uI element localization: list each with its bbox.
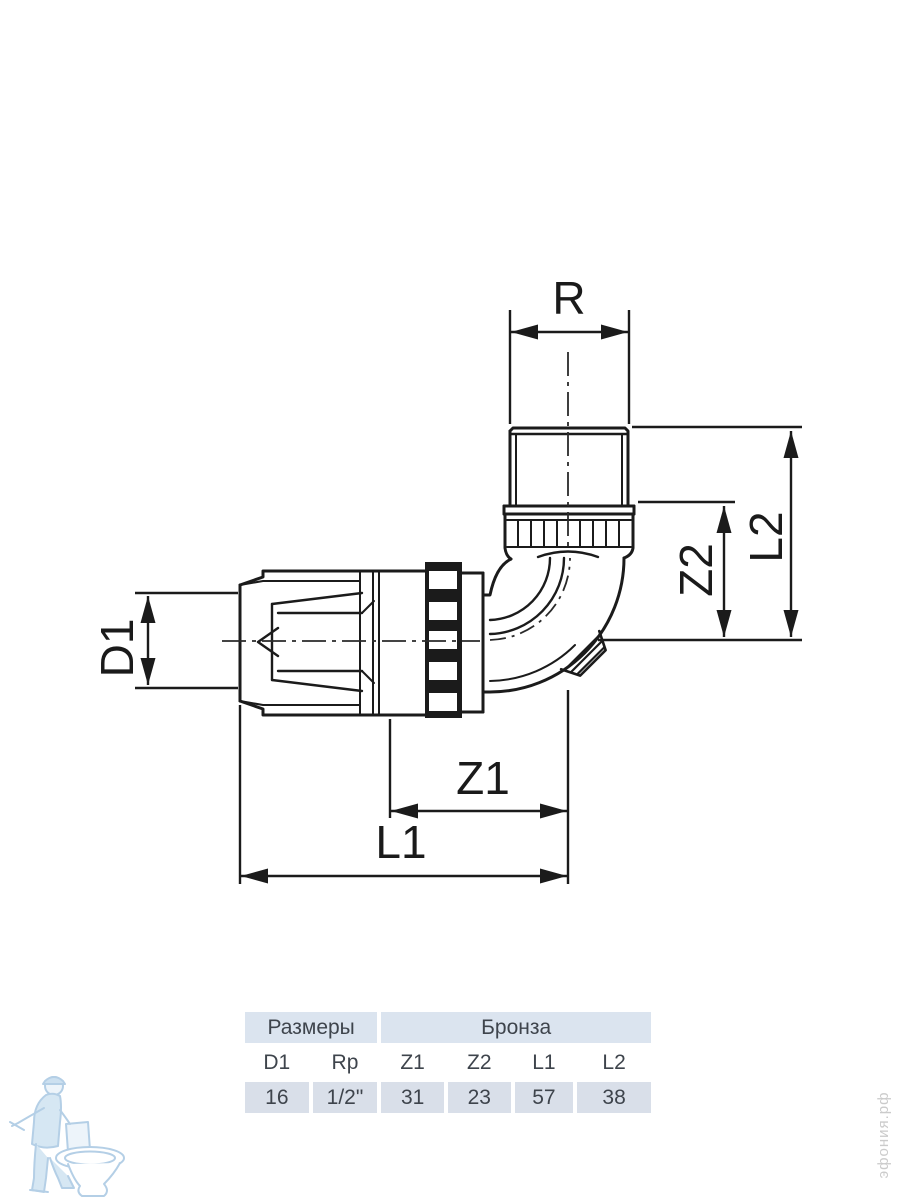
dimension-d1: D1 xyxy=(91,593,238,688)
arrowhead xyxy=(241,869,268,884)
page: R L2 Z2 xyxy=(0,0,900,1200)
dimension-l1: L1 xyxy=(240,690,568,884)
insertion-cone xyxy=(258,628,278,656)
bend-centerline xyxy=(490,558,570,640)
dimension-z2: Z2 xyxy=(638,502,735,637)
plumber-logo-watermark xyxy=(4,1066,144,1200)
column-header-rp: Rp xyxy=(313,1047,378,1078)
group-header-bronze: Бронза xyxy=(381,1012,651,1043)
table-group-header-row: Размеры Бронза xyxy=(245,1012,651,1043)
dimension-r: R xyxy=(510,272,629,424)
dimension-label-l2: L2 xyxy=(740,511,792,562)
column-header-d1: D1 xyxy=(245,1047,309,1078)
arrowhead xyxy=(784,610,799,637)
value-z1: 31 xyxy=(381,1082,444,1113)
column-header-l1: L1 xyxy=(515,1047,574,1078)
column-header-z1: Z1 xyxy=(381,1047,444,1078)
dimension-z1: Z1 xyxy=(390,719,567,819)
dimensions-table: Размеры Бронза D1 Rp Z1 Z2 L1 L2 16 1/2"… xyxy=(241,1008,655,1117)
dimension-label-z2: Z2 xyxy=(670,543,722,597)
arrowhead xyxy=(717,610,732,637)
value-l2: 38 xyxy=(577,1082,651,1113)
arrowhead xyxy=(784,431,799,458)
dimension-label-z1: Z1 xyxy=(456,752,510,804)
value-z2: 23 xyxy=(448,1082,511,1113)
union-nut xyxy=(504,506,634,559)
column-header-l2: L2 xyxy=(577,1047,651,1078)
table-column-header-row: D1 Rp Z1 Z2 L1 L2 xyxy=(245,1047,651,1078)
site-watermark-text: эфония.рф xyxy=(875,1075,897,1195)
centerlines xyxy=(222,352,570,641)
value-l1: 57 xyxy=(515,1082,574,1113)
dimension-label-l1: L1 xyxy=(375,816,426,868)
table-value-row: 16 1/2" 31 23 57 38 xyxy=(245,1082,651,1113)
socket-band xyxy=(462,573,483,712)
elbow-fitting xyxy=(240,428,634,718)
value-d1: 16 xyxy=(245,1082,309,1113)
value-rp: 1/2" xyxy=(313,1082,378,1113)
plumber-figure xyxy=(10,1077,74,1192)
grip-ring xyxy=(425,562,462,718)
dimension-label-d1: D1 xyxy=(91,619,143,678)
male-thread xyxy=(510,428,628,506)
elbow-bend xyxy=(483,558,624,692)
push-fit-collet xyxy=(240,571,425,715)
outer-lug xyxy=(561,631,612,682)
dimension-label-r: R xyxy=(552,272,585,324)
arrowhead xyxy=(511,325,538,340)
column-header-z2: Z2 xyxy=(448,1047,511,1078)
arrowhead xyxy=(717,506,732,533)
group-header-sizes: Размеры xyxy=(245,1012,377,1043)
technical-drawing: R L2 Z2 xyxy=(0,0,900,960)
arrowhead xyxy=(540,804,567,819)
arrowhead xyxy=(540,869,567,884)
arrowhead xyxy=(601,325,628,340)
